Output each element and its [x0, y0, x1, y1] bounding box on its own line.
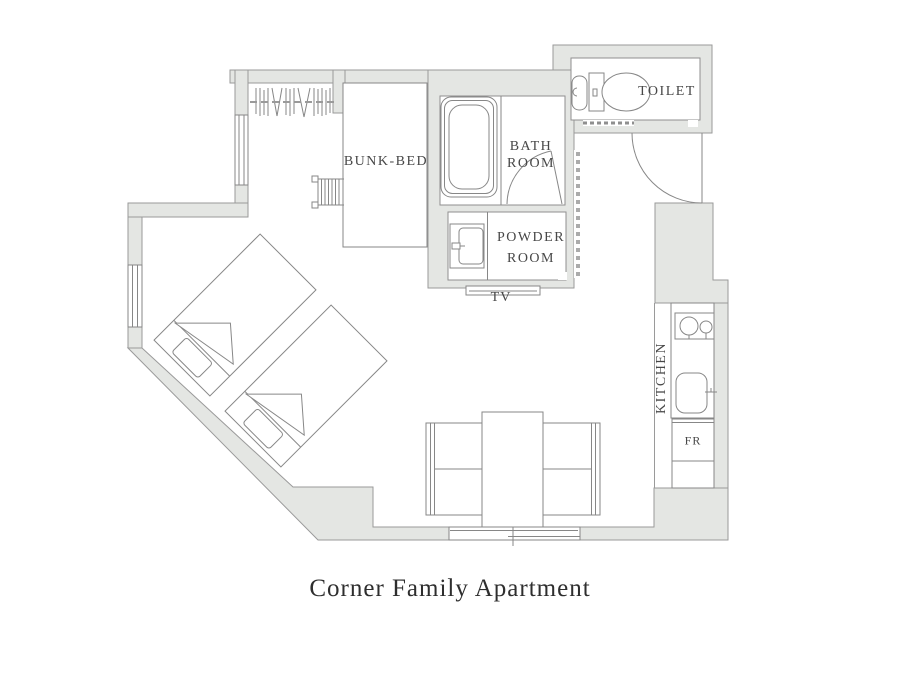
bath-room-label: BATH ROOM [507, 138, 555, 172]
floor-plan: BUNK-BED TOILET BATH ROOM POWDER ROOM TV… [0, 0, 900, 675]
dining-table [482, 412, 543, 527]
bunk-bed-ladder-icon [312, 176, 344, 208]
tv-label: TV [491, 290, 512, 306]
dining-bench-left [426, 423, 483, 515]
entry-door-icon [632, 133, 702, 203]
window-upper-left [235, 115, 248, 185]
fridge-box [672, 419, 714, 488]
bath-room-label-line2: ROOM [507, 155, 555, 172]
toilet-label: TOILET [638, 84, 696, 100]
powder-room-label-line1: POWDER [497, 227, 565, 248]
toilet-threshold [583, 120, 634, 126]
kitchen-label: KITCHEN [654, 342, 670, 414]
bunk-bed-label: BUNK-BED [344, 154, 428, 170]
bathtub-icon [441, 96, 501, 205]
kitchen-stove-icon [675, 313, 714, 339]
bath-room-label-line1: BATH [507, 138, 555, 155]
bath-side-partition [574, 150, 582, 278]
window-lower-left [128, 265, 142, 327]
floor-plan-svg [0, 0, 900, 675]
powder-room-label: POWDER ROOM [497, 227, 565, 269]
plan-title: Corner Family Apartment [309, 575, 590, 603]
dining-bench-right [543, 423, 600, 515]
fridge-label: FR [685, 434, 702, 449]
powder-room-label-line2: ROOM [497, 248, 565, 269]
closet-hanging-clothes-icon [250, 88, 336, 117]
